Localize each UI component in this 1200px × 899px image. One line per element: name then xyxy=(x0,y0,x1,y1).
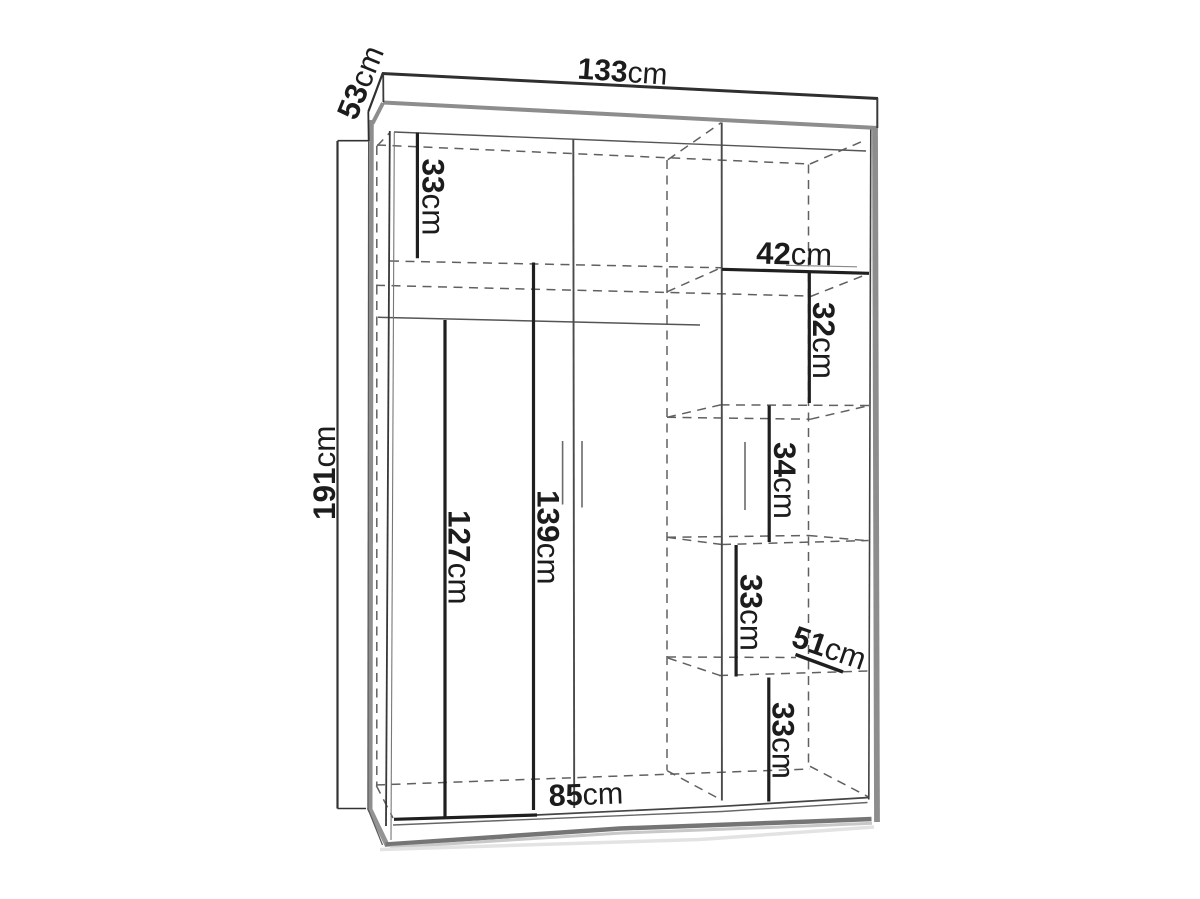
svg-text:127cm: 127cm xyxy=(442,510,478,605)
svg-text:42cm: 42cm xyxy=(756,236,833,273)
svg-text:32cm: 32cm xyxy=(806,302,842,379)
svg-text:133cm: 133cm xyxy=(577,53,669,92)
svg-text:33cm: 33cm xyxy=(734,574,770,651)
svg-text:139cm: 139cm xyxy=(531,490,567,585)
svg-text:33cm: 33cm xyxy=(766,702,802,779)
svg-text:85cm: 85cm xyxy=(548,776,624,813)
svg-text:53cm: 53cm xyxy=(330,41,391,124)
svg-text:33cm: 33cm xyxy=(416,159,452,236)
svg-text:34cm: 34cm xyxy=(767,442,803,519)
svg-text:191cm: 191cm xyxy=(306,425,342,520)
